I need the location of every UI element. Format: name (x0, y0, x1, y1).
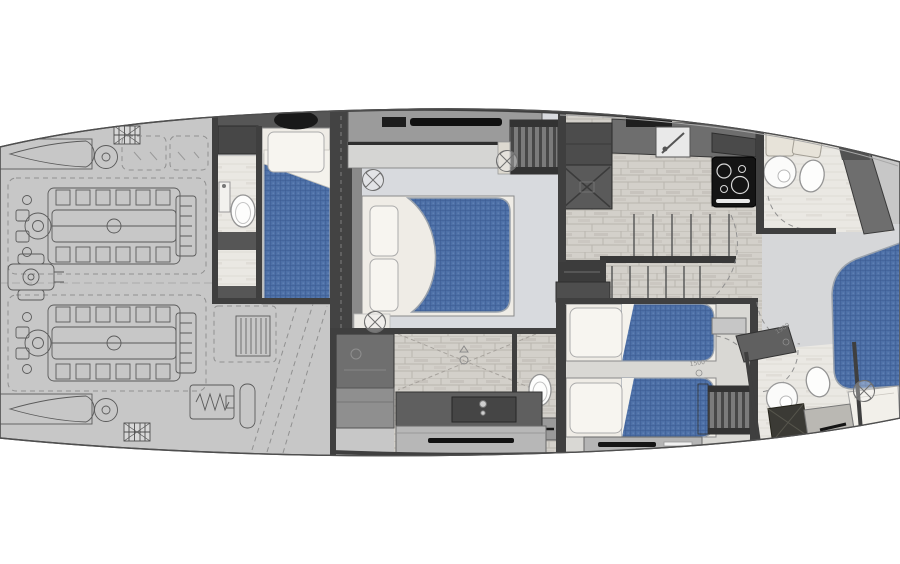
faucet-icon (480, 401, 487, 408)
twin-bed-aft-pillow (570, 383, 622, 433)
ceiling-fan-icon (365, 312, 386, 333)
wall (212, 298, 332, 304)
crew-cabinet (218, 126, 258, 154)
entry-step (712, 318, 746, 334)
linen-locker (698, 384, 708, 434)
day-head-sink (778, 170, 790, 182)
faucet-icon (481, 411, 485, 415)
cooktop-handle (716, 199, 750, 203)
twin-wardrobe (708, 386, 754, 434)
day-head-cabinet (766, 126, 794, 156)
ceiling-fan-icon (497, 151, 518, 172)
wall (558, 110, 566, 262)
faucet-icon (222, 184, 226, 188)
crew-bed-pillow (268, 132, 324, 172)
wall (330, 328, 336, 456)
tv-unit (382, 117, 406, 127)
twin-bed-forward-mattress (622, 304, 714, 361)
wardrobe-rail (708, 428, 754, 434)
wall (558, 305, 566, 455)
wall (556, 298, 756, 304)
wall (212, 110, 218, 304)
yacht-lower-deck-plan: 1500 1900 (0, 0, 900, 564)
wardrobe-rail (510, 167, 558, 174)
wardrobe-rail (708, 386, 754, 392)
master-wardrobe (510, 120, 558, 174)
wall (756, 110, 764, 234)
twin-bed-forward-pillow (570, 308, 622, 357)
stair-stringer (600, 256, 736, 263)
master-bed-pillow (370, 259, 398, 311)
master-bath-vanity (336, 334, 394, 388)
cabinet-rail (774, 118, 810, 128)
vent-grille-icon (114, 126, 140, 144)
master-bath-cabinet (336, 388, 394, 428)
crew-toilet (231, 195, 255, 227)
wall (758, 228, 836, 234)
sideboard-handle (598, 442, 656, 447)
faucet-icon (663, 147, 668, 152)
wardrobe-rail (510, 120, 558, 127)
cabinet-handle (428, 438, 514, 443)
ceiling-fan-icon (854, 381, 875, 402)
wall (256, 126, 262, 304)
vent-grille-icon (124, 423, 150, 441)
ceiling-fan-icon (363, 170, 384, 191)
tv-screen (410, 118, 502, 126)
master-bed-pillow (370, 206, 398, 256)
